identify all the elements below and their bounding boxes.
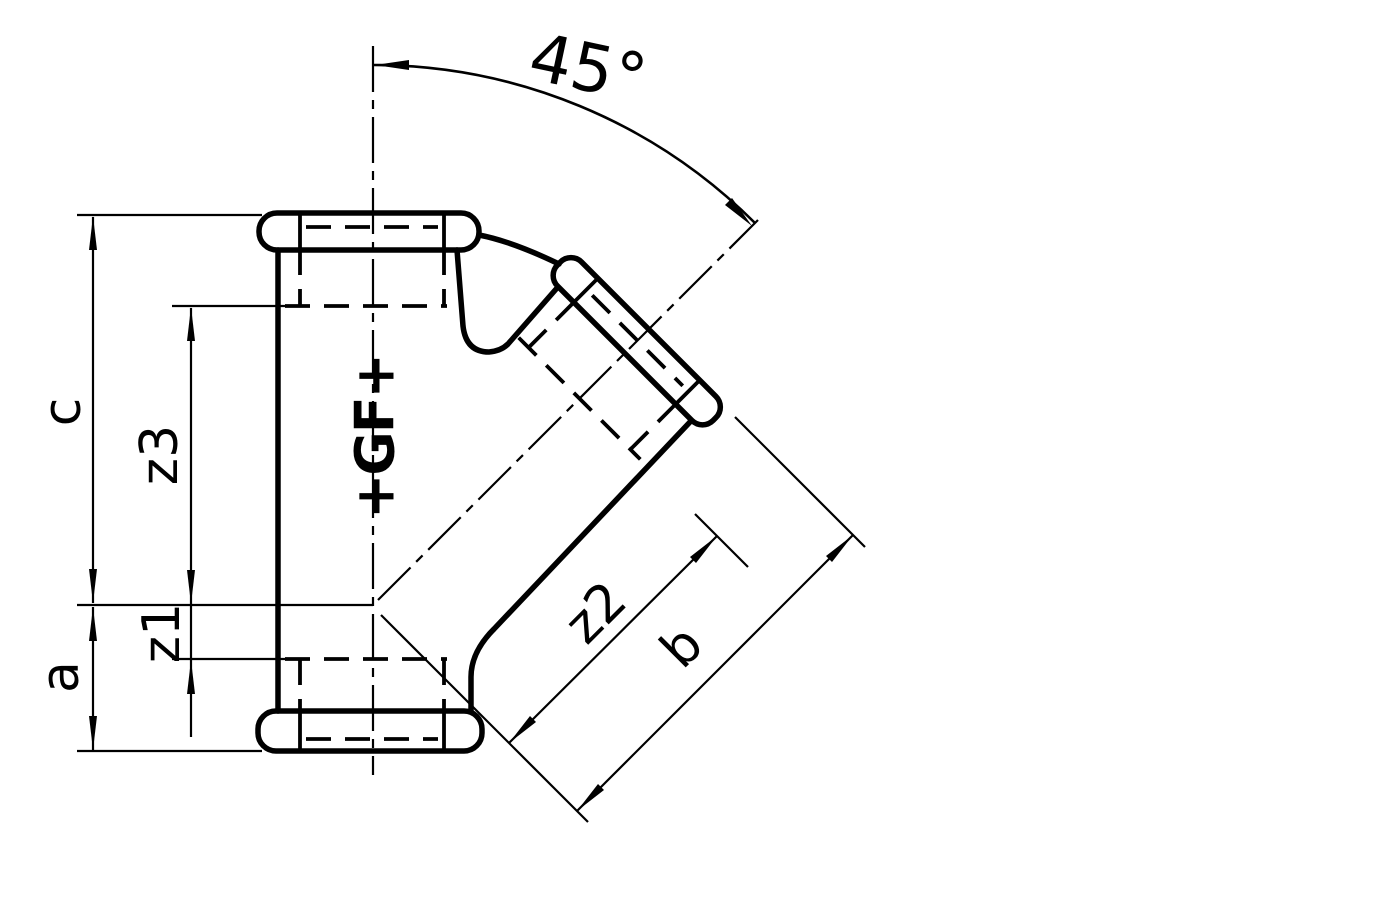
bottom-socket-bead [258,711,482,751]
arrow-b-far [826,535,853,562]
fitting-outline [258,213,690,751]
arrow-a-bottom [89,716,97,750]
ext-line-branch-face [735,417,865,547]
arrow-z3-bottom [187,570,195,604]
arrow-arc-left [375,60,409,70]
arrow-arc-right [725,198,752,226]
top-to-branch-curve [479,235,559,264]
label-45-degrees: 45° [523,18,653,118]
arrow-b-near [577,784,604,811]
drawing-canvas: 45° c z3 z1 a z2 b +GF+ [0,0,1400,900]
branch-lower-wall [471,422,690,711]
label-dim-z3: z3 [130,425,190,485]
label-dim-b: b [649,614,715,680]
arrow-z3-top [187,307,195,341]
ext-line-branch-thread [695,514,748,567]
top-socket-bead [259,213,479,250]
arrow-z2-far [690,536,717,563]
label-dim-a: a [31,661,91,693]
fitting-technical-drawing: 45° c z3 z1 a z2 b +GF+ [0,0,1400,900]
label-dim-c: c [33,398,93,427]
label-dim-z2: z2 [553,570,638,655]
arrow-a-top [89,607,97,641]
arrow-z1-bottom [187,660,195,694]
ext-line-branch-center [381,615,588,822]
label-dim-z1: z1 [132,603,192,663]
dim-line-b [577,535,853,811]
extension-lines [77,215,865,822]
arrow-c-top [89,216,97,250]
branch-centerline [378,220,758,600]
gf-logo: +GF+ [344,355,407,519]
arrow-z2-near [509,716,536,743]
arrow-c-bottom [89,569,97,603]
